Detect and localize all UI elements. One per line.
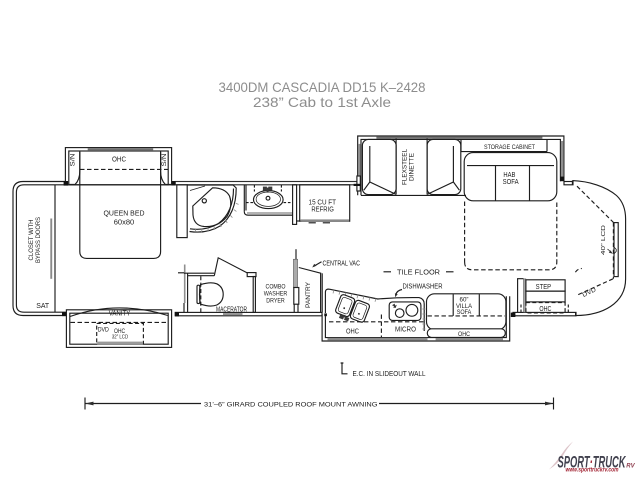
svg-text:31’–6” GIRARD COUPLED ROOF: 31’–6” GIRARD COUPLED ROOF MOUNT AWNING <box>204 401 378 408</box>
svg-text:E.C. IN SLIDEOUT WALL: E.C. IN SLIDEOUT WALL <box>353 371 426 378</box>
svg-text:OHC: OHC <box>112 157 126 164</box>
svg-text:15 CU FT: 15 CU FT <box>309 200 337 207</box>
svg-text:SOFA: SOFA <box>503 179 519 186</box>
svg-text:DRYER: DRYER <box>266 298 285 305</box>
svg-text:60x80: 60x80 <box>114 220 135 227</box>
svg-text:VANITY: VANITY <box>109 311 131 318</box>
svg-text:RV: RV <box>626 464 635 470</box>
svg-text:COMBO: COMBO <box>266 284 286 291</box>
svg-text:REFRIG: REFRIG <box>311 207 334 214</box>
svg-text:WASHER: WASHER <box>264 291 288 298</box>
svg-text:OHC: OHC <box>346 328 359 335</box>
svg-text:OHC: OHC <box>458 331 470 338</box>
svg-text:DISHWASHER: DISHWASHER <box>403 283 443 290</box>
svg-text:TILE FLOOR: TILE FLOOR <box>397 270 440 277</box>
svg-text:HAB: HAB <box>503 172 515 179</box>
svg-text:DINETTE: DINETTE <box>409 153 416 181</box>
svg-text:STEP: STEP <box>536 284 552 291</box>
svg-text:SAT: SAT <box>36 303 50 310</box>
svg-text:MICRO: MICRO <box>395 327 416 334</box>
svg-text:PANTRY: PANTRY <box>305 281 312 308</box>
svg-text:STORAGE CABINET: STORAGE CABINET <box>484 144 535 151</box>
svg-text:MACERATOR: MACERATOR <box>216 307 247 314</box>
svg-text:CENTRAL VAC: CENTRAL VAC <box>323 260 361 267</box>
svg-text:32” LCD: 32” LCD <box>112 335 129 341</box>
svg-text:QUEEN BED: QUEEN BED <box>104 211 145 218</box>
svg-text:SOFA: SOFA <box>457 309 472 316</box>
svg-text:FLEXSTEEL: FLEXSTEEL <box>402 149 409 185</box>
svg-text:40” LCD: 40” LCD <box>601 225 607 255</box>
svg-text:3400DM CASCADIA DD15 K–2428: 3400DM CASCADIA DD15 K–2428 <box>219 79 426 95</box>
svg-text:CLOSET WITH: CLOSET WITH <box>28 219 35 260</box>
svg-text:S/N: S/N <box>161 153 168 166</box>
svg-text:BYPASS DOORS: BYPASS DOORS <box>35 217 42 263</box>
svg-text:S/N: S/N <box>70 153 77 166</box>
svg-text:DVD: DVD <box>581 286 597 299</box>
svg-text:DVD: DVD <box>98 327 110 334</box>
svg-text:238” Cab to 1st Axle: 238” Cab to 1st Axle <box>253 94 391 110</box>
svg-text:OHC: OHC <box>539 306 551 313</box>
svg-text:www.sporttruckrv.com: www.sporttruckrv.com <box>566 466 619 473</box>
